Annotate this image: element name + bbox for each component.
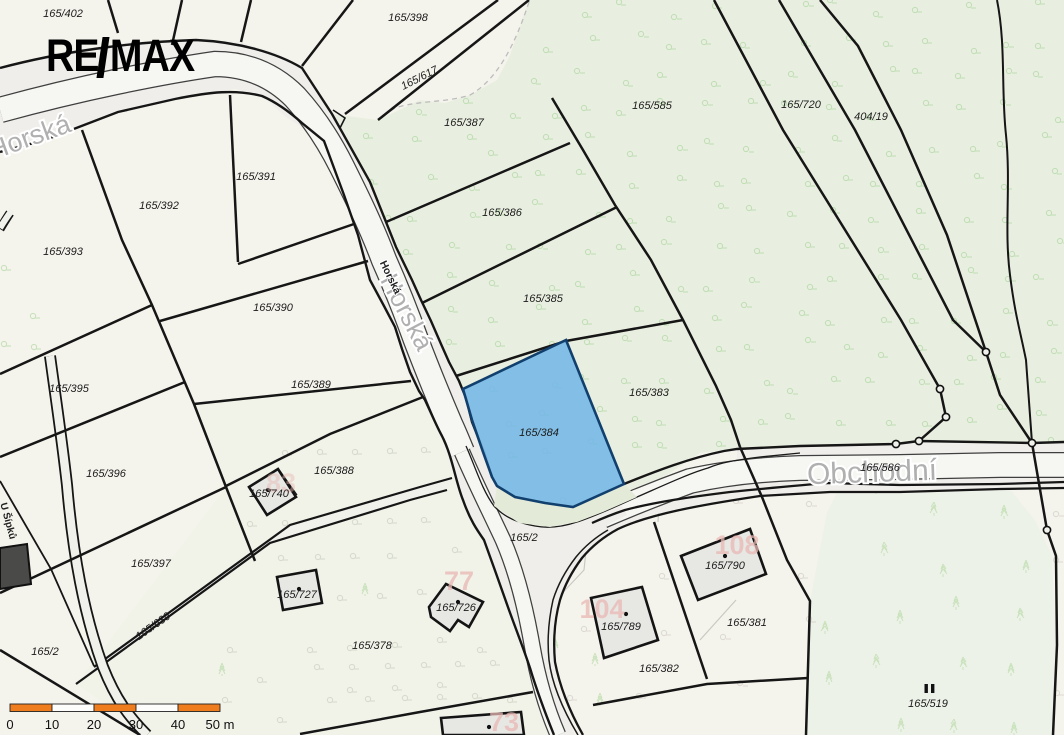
svg-text:165/720: 165/720 [781, 99, 822, 111]
svg-text:165/390: 165/390 [253, 302, 294, 314]
svg-text:165/790: 165/790 [705, 560, 746, 572]
svg-text:30: 30 [129, 717, 143, 732]
svg-text:73: 73 [489, 707, 519, 735]
svg-text:165/740: 165/740 [249, 488, 290, 500]
svg-text:50 m: 50 m [206, 717, 235, 732]
svg-text:165/386: 165/386 [482, 207, 523, 219]
svg-text:165/389: 165/389 [291, 379, 331, 391]
svg-text:165/385: 165/385 [523, 293, 564, 305]
svg-text:165/381: 165/381 [727, 617, 767, 629]
svg-text:104: 104 [579, 594, 624, 624]
svg-text:40: 40 [171, 717, 185, 732]
svg-text:20: 20 [87, 717, 101, 732]
svg-text:165/382: 165/382 [639, 663, 679, 675]
svg-text:165/789: 165/789 [601, 621, 641, 633]
svg-text:165/383: 165/383 [629, 387, 670, 399]
svg-text:MAX: MAX [110, 30, 195, 80]
svg-text:165/378: 165/378 [352, 640, 393, 652]
svg-text:165/395: 165/395 [49, 383, 90, 395]
svg-text:10: 10 [45, 717, 59, 732]
svg-text:RE: RE [46, 30, 99, 80]
svg-text:165/393: 165/393 [43, 246, 84, 258]
svg-text:165/387: 165/387 [444, 117, 485, 129]
svg-text:108: 108 [714, 530, 759, 560]
svg-text:165/586: 165/586 [860, 462, 901, 474]
svg-text:165/391: 165/391 [236, 171, 276, 183]
svg-text:165/727: 165/727 [277, 589, 318, 601]
svg-text:0: 0 [6, 717, 13, 732]
svg-text:165/396: 165/396 [86, 468, 127, 480]
svg-text:165/397: 165/397 [131, 558, 172, 570]
svg-text:165/402: 165/402 [43, 8, 83, 20]
svg-text:165/398: 165/398 [388, 12, 429, 24]
svg-text:165/392: 165/392 [139, 200, 179, 212]
svg-text:165/519: 165/519 [908, 698, 948, 710]
svg-text:77: 77 [444, 566, 474, 596]
svg-text:165/384: 165/384 [519, 427, 559, 439]
svg-text:404/19: 404/19 [854, 111, 888, 123]
svg-text:165/388: 165/388 [314, 465, 355, 477]
svg-text:165/585: 165/585 [632, 100, 673, 112]
svg-text:165/726: 165/726 [436, 602, 477, 614]
svg-text:165/2: 165/2 [31, 646, 59, 658]
svg-text:165/2: 165/2 [510, 532, 538, 544]
